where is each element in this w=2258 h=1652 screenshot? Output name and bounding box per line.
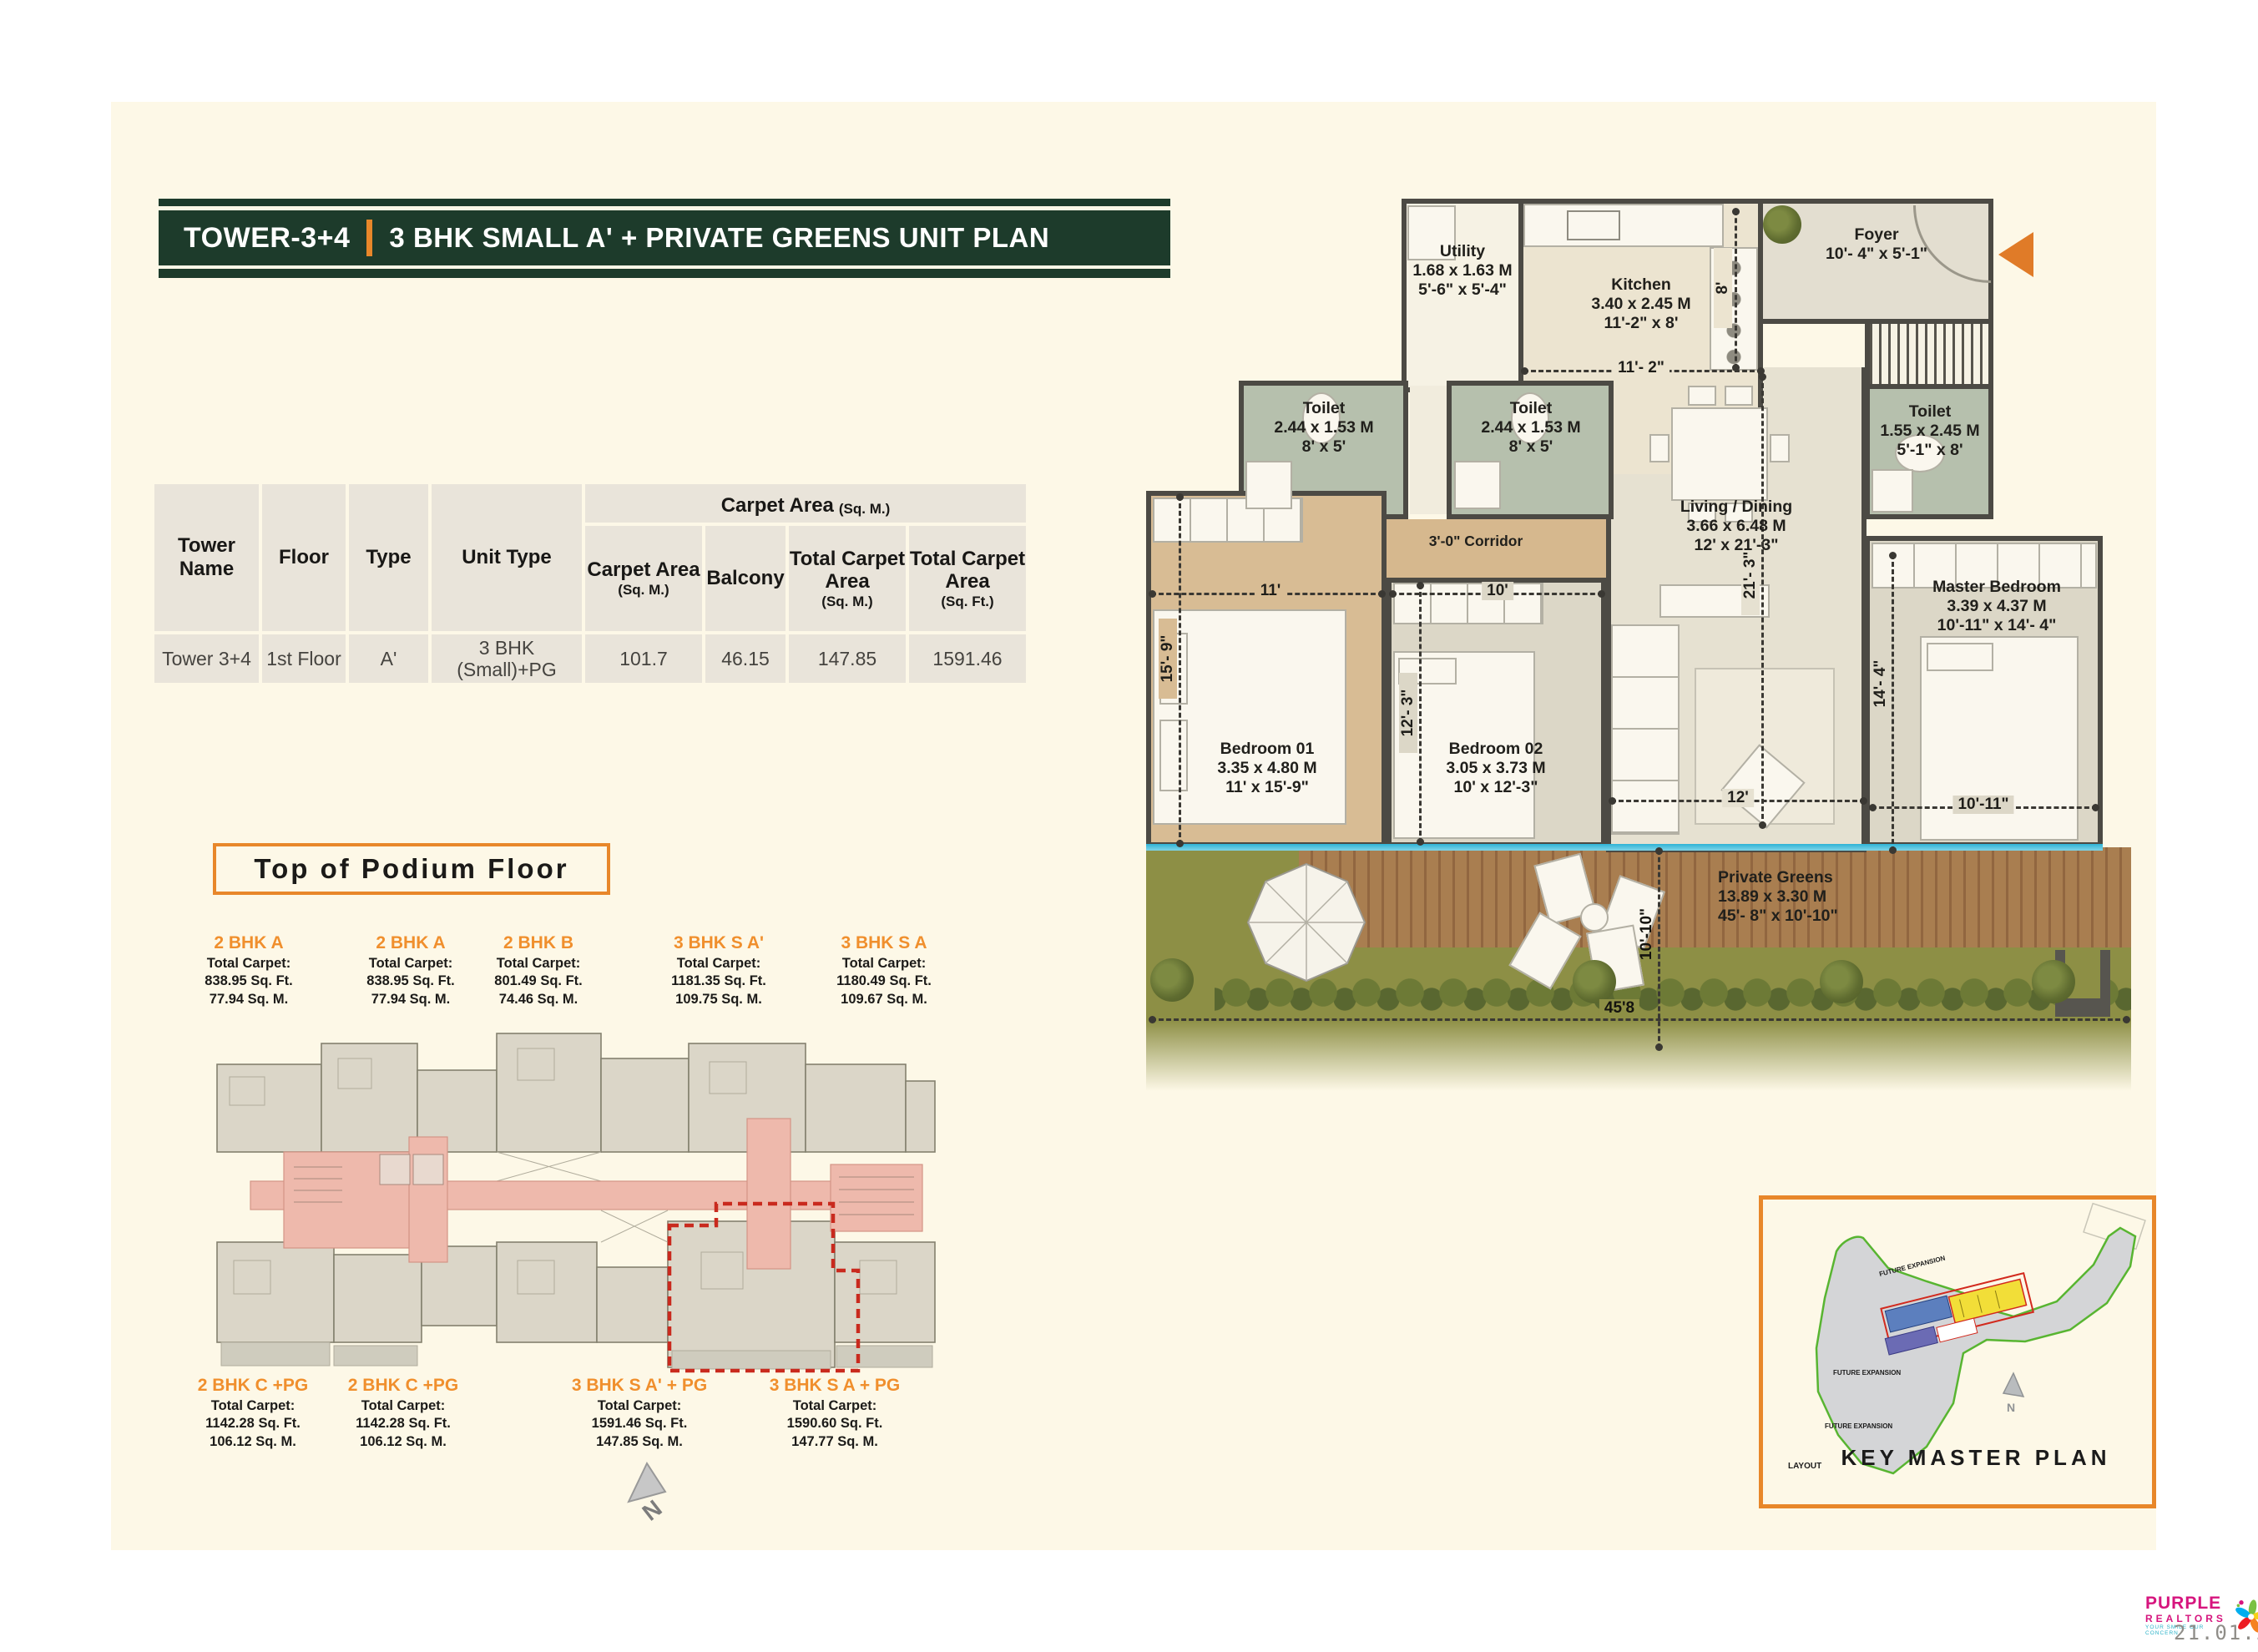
- row-balcony: 46.15: [705, 634, 786, 683]
- unit-name: 3 BHK S A: [805, 933, 963, 953]
- podium-unit-label: 2 BHK C +PG Total Carpet: 1142.28 Sq. Ft…: [324, 1376, 482, 1451]
- room-dim-ft: 45'- 8" x 10'-10": [1718, 907, 1838, 926]
- banner-top-rule: [159, 199, 1170, 206]
- grass-fade: [1146, 1020, 2131, 1091]
- room-dim-ft: 10' x 12'-3": [1446, 778, 1545, 797]
- unit-sqft: 1142.28 Sq. Ft.: [174, 1415, 332, 1432]
- unit-name: 2 BHK A: [169, 933, 328, 953]
- podium-unit-label: 3 BHK S A Total Carpet: 1180.49 Sq. Ft. …: [805, 933, 963, 1008]
- unit-sqft: 838.95 Sq. Ft.: [169, 973, 328, 990]
- unit-sqm: 74.46 Sq. M.: [459, 991, 618, 1008]
- banner-tower-label: TOWER-3+4: [184, 222, 350, 255]
- unit-sqft: 801.49 Sq. Ft.: [459, 973, 618, 990]
- banner-orange-divider: [366, 220, 372, 256]
- room-name: Utility: [1412, 242, 1512, 261]
- unit-sqft: 1181.35 Sq. Ft.: [639, 973, 798, 990]
- wardrobe: [1393, 583, 1543, 624]
- row-total-m: 147.85: [789, 634, 906, 683]
- unit-total-label: Total Carpet:: [174, 1397, 332, 1415]
- kitchen-sink: [1567, 210, 1620, 240]
- col-header-total-ft: Total Carpet Area (Sq. Ft.): [909, 526, 1026, 631]
- unit-total-label: Total Carpet:: [639, 955, 798, 973]
- room-dim-ft: 11' x 15'-9": [1217, 778, 1316, 797]
- unit-sqm: 77.94 Sq. M.: [169, 991, 328, 1008]
- podium-unit-label: 2 BHK C +PG Total Carpet: 1142.28 Sq. Ft…: [174, 1376, 332, 1451]
- col-header-type: Type: [349, 484, 428, 631]
- room-dim-ft: 11'-2" x 8': [1591, 314, 1690, 333]
- dim-line: [1419, 584, 1422, 843]
- plant-icon: [1763, 205, 1801, 244]
- keyplan-title: KEY MASTER PLAN: [1841, 1445, 2111, 1470]
- carpet-header-unit: (Sq. M.): [618, 582, 669, 599]
- site-boundary: [1816, 1228, 2135, 1473]
- total-m-header-unit: (Sq. M.): [821, 594, 872, 610]
- banner-bottom-rule: [159, 269, 1170, 278]
- dining-table: [1671, 407, 1768, 501]
- key-master-plan-map: N FUTURE EXPANSION FUTURE EXPANSION FUTU…: [1763, 1200, 2152, 1504]
- tree-icon: [1150, 958, 1194, 1002]
- room-dim-m: 2.44 x 1.53 M: [1274, 418, 1373, 437]
- group-header-unit: (Sq. M.): [839, 501, 890, 518]
- room-dim-m: 13.89 x 3.30 M: [1718, 887, 1838, 907]
- label-private-greens: Private Greens 13.89 x 3.30 M 45'- 8" x …: [1718, 868, 1838, 926]
- brochure-page: TOWER-3+4 3 BHK SMALL A' + PRIVATE GREEN…: [0, 0, 2258, 1652]
- label-utility: Utility 1.68 x 1.63 M 5'-6" x 5'-4": [1412, 242, 1512, 300]
- keyplan-north-icon: [2003, 1373, 2023, 1397]
- room-name: 3'-0" Corridor: [1429, 533, 1523, 550]
- group-header-text: Carpet Area: [721, 494, 834, 518]
- room-dim-m: 1.55 x 2.45 M: [1880, 422, 1979, 441]
- dim-line: [1151, 1018, 2128, 1021]
- unit-sqm: 147.77 Sq. M.: [755, 1433, 914, 1451]
- col-header-floor: Floor: [262, 484, 346, 631]
- podium-unit-label: 2 BHK A Total Carpet: 838.95 Sq. Ft. 77.…: [169, 933, 328, 1008]
- dim-label-11: 11': [1255, 582, 1286, 600]
- label-toilet-3: Toilet 1.55 x 2.45 M 5'-1" x 8': [1880, 402, 1979, 460]
- room-dim-m: 3.40 x 2.45 M: [1591, 295, 1690, 314]
- dining-chair: [1649, 434, 1670, 462]
- tree-icon: [1573, 960, 1616, 1003]
- room-name: Bedroom 02: [1446, 740, 1545, 759]
- banner-plan-title: 3 BHK SMALL A' + PRIVATE GREENS UNIT PLA…: [389, 222, 1049, 254]
- col-header-tower: Tower Name: [154, 484, 259, 631]
- dim-line: [1179, 496, 1181, 845]
- row-tower: Tower 3+4: [154, 634, 259, 683]
- room-dim-m: 3.39 x 4.37 M: [1932, 597, 2061, 616]
- label-foyer: Foyer 10'- 4" x 5'-1": [1826, 225, 1927, 264]
- dim-line: [1761, 376, 1764, 826]
- keyplan-future-label: FUTURE EXPANSION: [1833, 1369, 1901, 1377]
- room-dim-m: 3.35 x 4.80 M: [1217, 759, 1316, 778]
- room-dim-m: 3.66 x 6.48 M: [1680, 517, 1792, 536]
- row-floor: 1st Floor: [262, 634, 346, 683]
- dim-label-10-11: 10'-11": [1952, 796, 2013, 814]
- room-dim-m: 2.44 x 1.53 M: [1481, 418, 1580, 437]
- unit-total-label: Total Carpet:: [560, 1397, 719, 1415]
- room-name: Bedroom 01: [1217, 740, 1316, 759]
- dining-chair: [1725, 386, 1753, 406]
- unit-sqm: 147.85 Sq. M.: [560, 1433, 719, 1451]
- keyplan-layout-label: LAYOUT: [1788, 1462, 1821, 1471]
- dim-label-10: 10': [1482, 582, 1513, 600]
- dim-label-15-9: 15'- 9": [1159, 619, 1177, 699]
- carpet-header-text: Carpet Area: [587, 558, 700, 582]
- col-header-balcony: Balcony: [705, 526, 786, 631]
- dim-line: [1735, 210, 1737, 369]
- keyplan-future-label: FUTURE EXPANSION: [1825, 1422, 1892, 1430]
- row-total-ft: 1591.46: [909, 634, 1026, 683]
- label-toilet-2: Toilet 2.44 x 1.53 M 8' x 5': [1481, 399, 1580, 457]
- north-arrow-icon: N: [622, 1457, 689, 1532]
- room-name: Toilet: [1481, 399, 1580, 418]
- label-bedroom-01: Bedroom 01 3.35 x 4.80 M 11' x 15'-9": [1217, 740, 1316, 797]
- room-dim-ft: 5'-1" x 8': [1880, 441, 1979, 460]
- unit-total-label: Total Carpet:: [169, 955, 328, 973]
- date-stamp: 21.01.2026: [2174, 1621, 2258, 1644]
- label-corridor: 3'-0" Corridor: [1429, 533, 1523, 550]
- podium-heading: Top of Podium Floor: [213, 843, 610, 895]
- unit-sqm: 106.12 Sq. M.: [174, 1433, 332, 1451]
- podium-unit-label: 2 BHK B Total Carpet: 801.49 Sq. Ft. 74.…: [459, 933, 618, 1008]
- label-bedroom-02: Bedroom 02 3.05 x 3.73 M 10' x 12'-3": [1446, 740, 1545, 797]
- unit-total-label: Total Carpet:: [324, 1397, 482, 1415]
- podium-floor-plan: [200, 1018, 952, 1373]
- unit-name: 2 BHK B: [459, 933, 618, 953]
- room-dim-ft: 5'-6" x 5'-4": [1412, 280, 1512, 300]
- balcony-strip: [1146, 844, 2103, 851]
- row-unit-type: 3 BHK (Small)+PG: [432, 634, 582, 683]
- podium-unit-label: 3 BHK S A' Total Carpet: 1181.35 Sq. Ft.…: [639, 933, 798, 1008]
- unit-sqm: 106.12 Sq. M.: [324, 1433, 482, 1451]
- row-type: A': [349, 634, 428, 683]
- unit-total-label: Total Carpet:: [805, 955, 963, 973]
- col-header-unit-type: Unit Type: [432, 484, 582, 631]
- unit-sqft: 1591.46 Sq. Ft.: [560, 1415, 719, 1432]
- key-master-plan-box: N FUTURE EXPANSION FUTURE EXPANSION FUTU…: [1759, 1195, 2156, 1508]
- pillow: [1927, 643, 1993, 671]
- keyplan-north-label: N: [2007, 1401, 2015, 1414]
- group-header-carpet-area: Carpet Area (Sq. M.): [585, 484, 1026, 523]
- room-name: Master Bedroom: [1932, 578, 2061, 597]
- label-toilet-1: Toilet 2.44 x 1.53 M 8' x 5': [1274, 399, 1373, 457]
- dim-label-8: 8': [1714, 248, 1732, 328]
- room-name: Toilet: [1274, 399, 1373, 418]
- unit-name: 2 BHK C +PG: [174, 1376, 332, 1396]
- garden-table: [1580, 903, 1609, 932]
- unit-sqm: 109.67 Sq. M.: [805, 991, 963, 1008]
- private-greens-deck: [1299, 847, 2131, 947]
- dim-label-12: 12': [1722, 789, 1754, 807]
- shower: [1454, 461, 1501, 509]
- garden-umbrella: [1244, 860, 1369, 985]
- col-header-total-m: Total Carpet Area (Sq. M.): [789, 526, 906, 631]
- room-dim-ft: 8' x 5': [1274, 437, 1373, 457]
- room-dim-m: 1.68 x 1.63 M: [1412, 261, 1512, 280]
- total-m-header-text: Total Carpet Area: [789, 548, 906, 594]
- label-living-dining: Living / Dining 3.66 x 6.48 M 12' x 21'-…: [1680, 498, 1792, 555]
- unit-sqft: 1590.60 Sq. Ft.: [755, 1415, 914, 1432]
- label-master-bedroom: Master Bedroom 3.39 x 4.37 M 10'-11" x 1…: [1932, 578, 2061, 635]
- dim-label-11-2: 11'- 2": [1613, 359, 1670, 377]
- podium-unit-label: 3 BHK S A' + PG Total Carpet: 1591.46 Sq…: [560, 1376, 719, 1451]
- shower: [1245, 461, 1292, 509]
- stair-hatch: [1865, 319, 1993, 389]
- room-dim-ft: 10'-11" x 14'- 4": [1932, 616, 2061, 635]
- unit-total-label: Total Carpet:: [459, 955, 618, 973]
- room-dim-m: 3.05 x 3.73 M: [1446, 759, 1545, 778]
- unit-sqft: 1142.28 Sq. Ft.: [324, 1415, 482, 1432]
- dining-chair: [1688, 386, 1716, 406]
- unit-sqm: 109.75 Sq. M.: [639, 991, 798, 1008]
- unit-sqft: 1180.49 Sq. Ft.: [805, 973, 963, 990]
- dim-label-12-3: 12'- 3": [1399, 673, 1417, 753]
- room-name: Toilet: [1880, 402, 1979, 422]
- room-name: Kitchen: [1591, 275, 1690, 295]
- vanity-strip: [1410, 386, 1447, 514]
- total-ft-header-text: Total Carpet Area: [909, 548, 1026, 594]
- room-name: Foyer: [1826, 225, 1927, 245]
- north-label: N: [638, 1495, 667, 1526]
- room-name: Living / Dining: [1680, 498, 1792, 517]
- pillow: [1159, 720, 1188, 791]
- carpet-area-table: Tower Name Floor Type Unit Type Carpet A…: [154, 484, 1026, 683]
- entry-arrow-icon: [1998, 232, 2033, 277]
- unit-total-label: Total Carpet:: [755, 1397, 914, 1415]
- room-dim-ft: 10'- 4" x 5'-1": [1826, 245, 1927, 264]
- unit-name: 3 BHK S A + PG: [755, 1376, 914, 1396]
- keyplan-future-label: FUTURE EXPANSION: [1878, 1255, 1946, 1278]
- total-ft-header-unit: (Sq. Ft.): [941, 594, 993, 610]
- room-name: Private Greens: [1718, 868, 1838, 887]
- unit-name: 3 BHK S A' + PG: [560, 1376, 719, 1396]
- unit-name: 2 BHK C +PG: [324, 1376, 482, 1396]
- dim-label-14-4: 14'- 4": [1872, 644, 1890, 724]
- dim-label-45-8: 45'8: [1599, 999, 1639, 1018]
- title-banner: TOWER-3+4 3 BHK SMALL A' + PRIVATE GREEN…: [159, 210, 1170, 265]
- dim-label-10-10: 10'-10": [1638, 894, 1656, 974]
- vanity: [1872, 469, 1913, 513]
- label-kitchen: Kitchen 3.40 x 2.45 M 11'-2" x 8': [1591, 275, 1690, 333]
- tree-icon: [2032, 960, 2075, 1003]
- kitchen-counter: [1523, 204, 1724, 247]
- col-header-carpet: Carpet Area (Sq. M.): [585, 526, 702, 631]
- tree-icon: [1820, 960, 1863, 1003]
- sofa: [1611, 624, 1680, 835]
- row-carpet: 101.7: [585, 634, 702, 683]
- unit-name: 3 BHK S A': [639, 933, 798, 953]
- brand-name-top: PURPLE: [2145, 1594, 2230, 1612]
- dining-chair: [1770, 434, 1790, 462]
- room-dim-ft: 8' x 5': [1481, 437, 1580, 457]
- podium-unit-label: 3 BHK S A + PG Total Carpet: 1590.60 Sq.…: [755, 1376, 914, 1451]
- room-dim-ft: 12' x 21'-3": [1680, 536, 1792, 555]
